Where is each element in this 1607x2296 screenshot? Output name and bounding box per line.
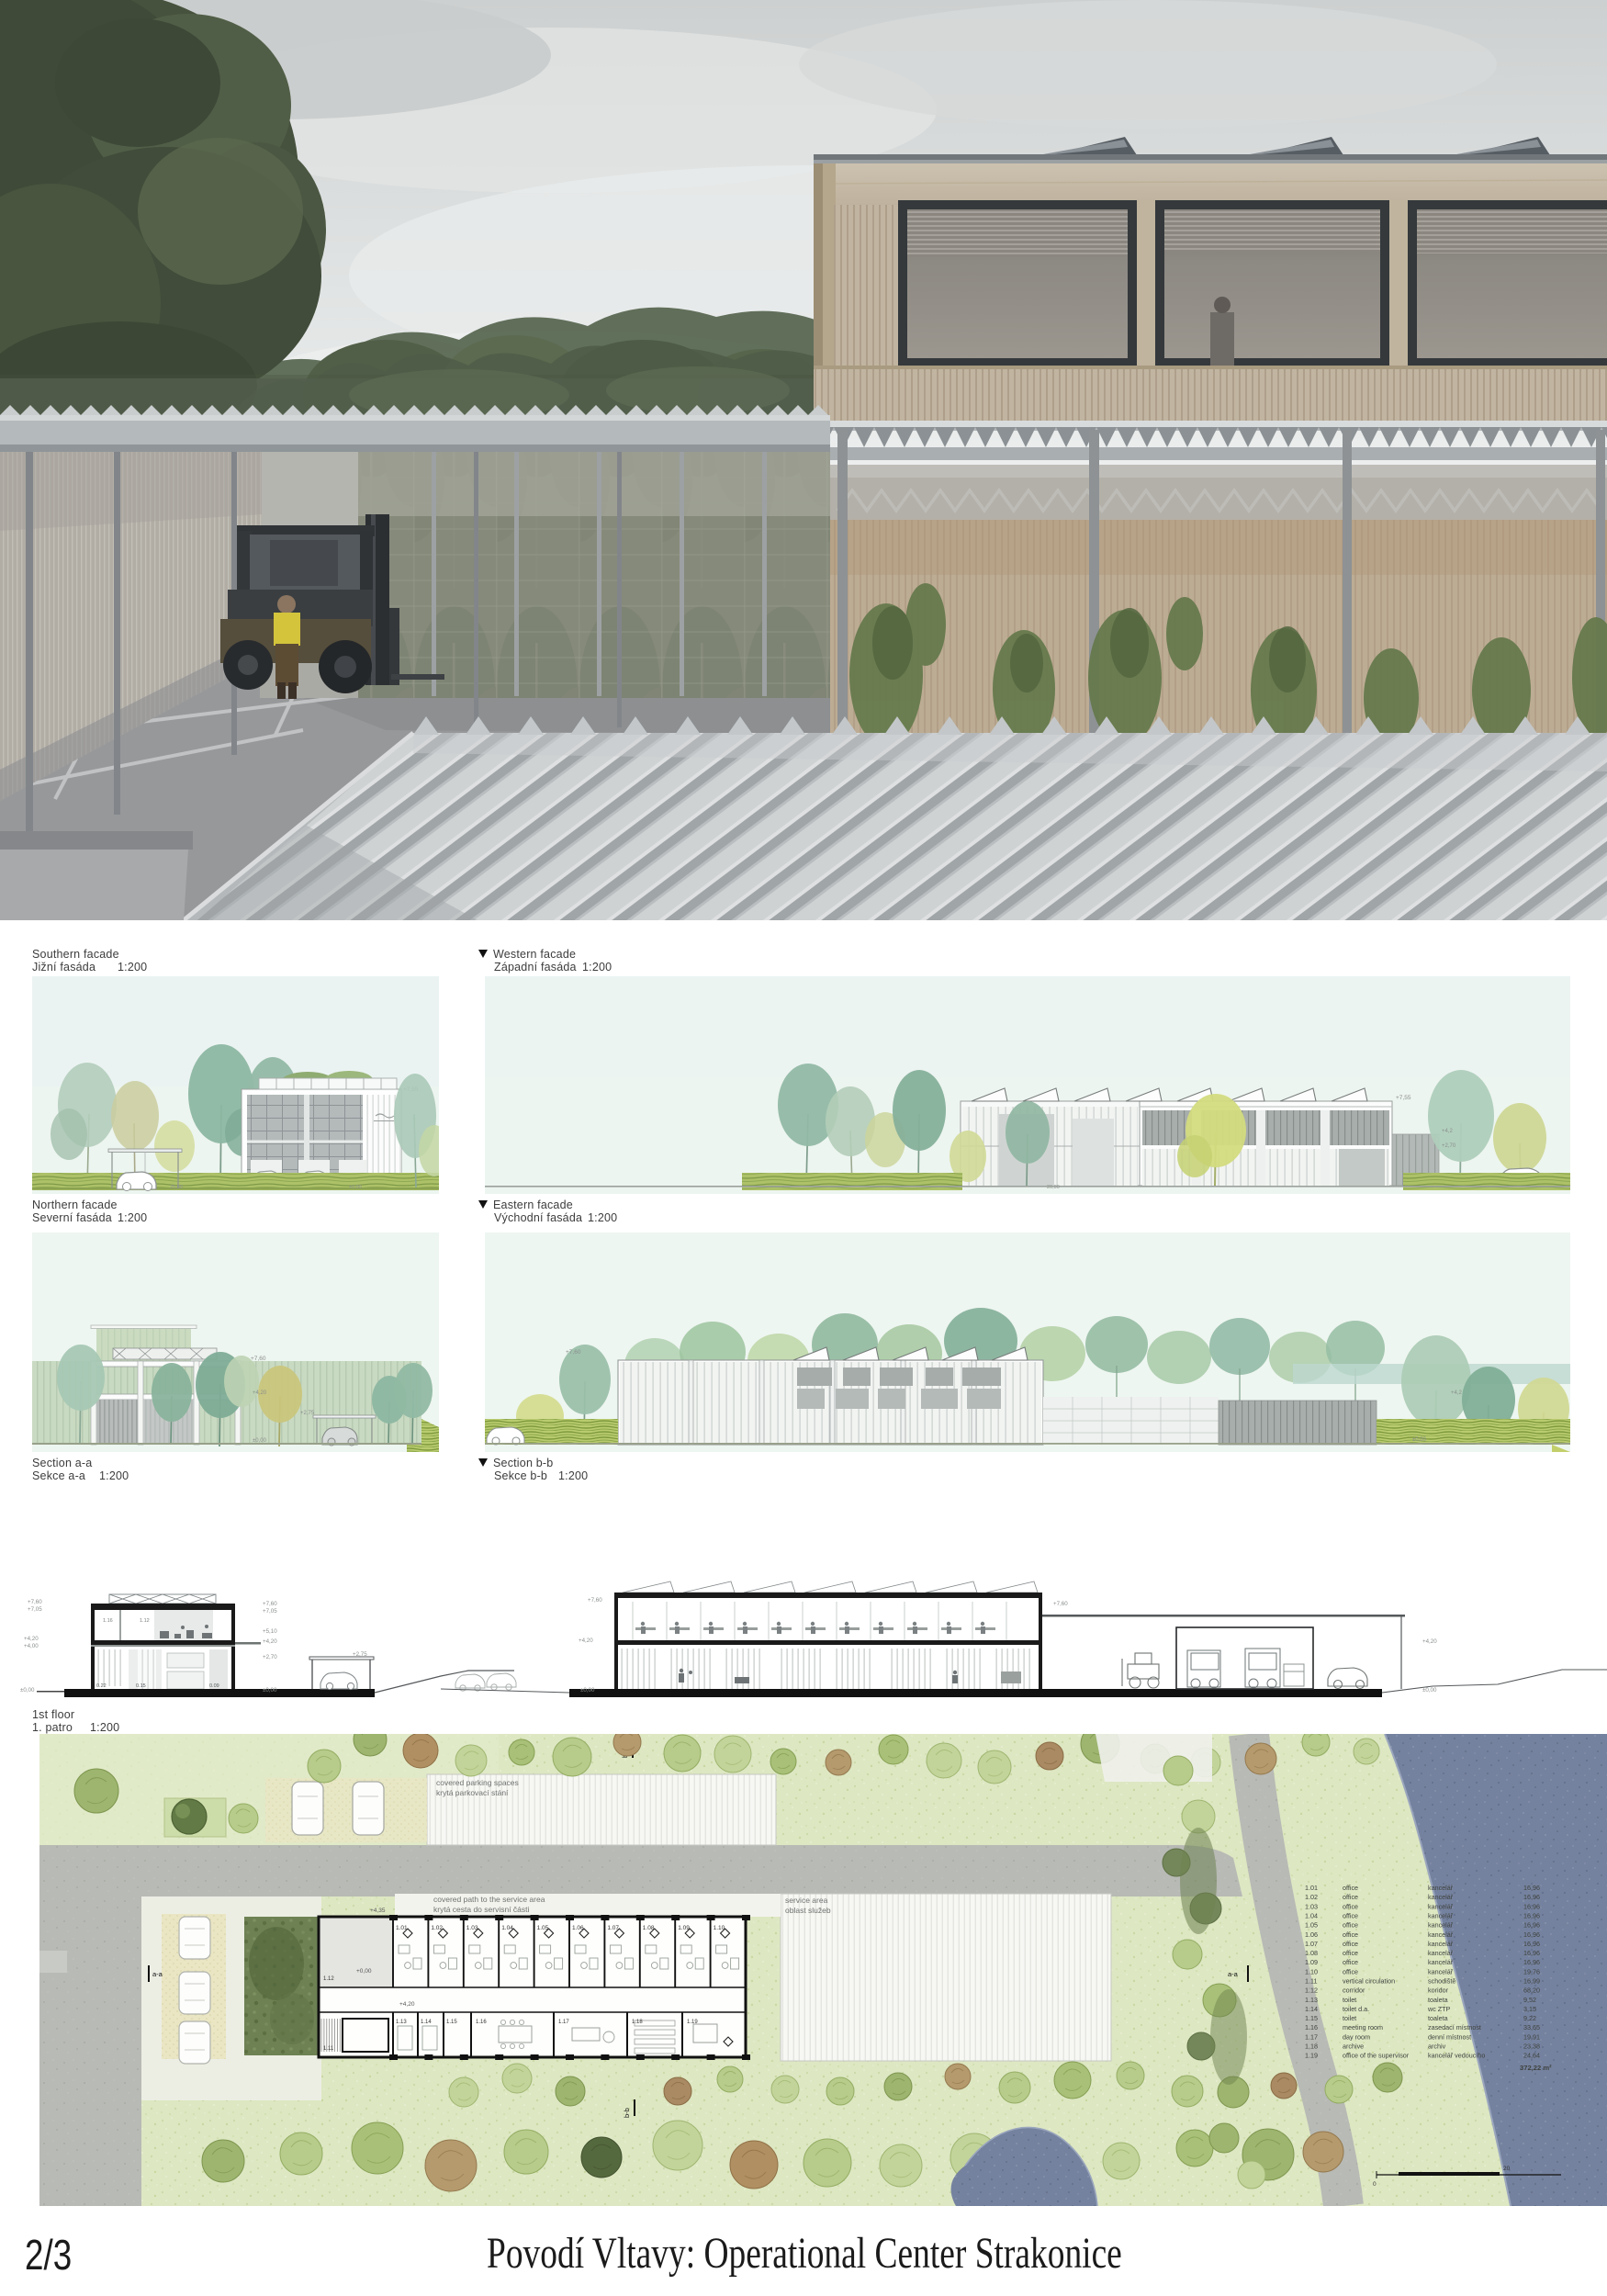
svg-text:16,96: 16,96: [1523, 1902, 1540, 1910]
svg-text:+7,60: +7,60: [588, 1597, 602, 1604]
svg-text:±0,00: ±0,00: [349, 1185, 362, 1190]
svg-text:+4,2: +4,2: [1442, 1129, 1454, 1134]
svg-text:25,00: 25,00: [170, 1185, 183, 1190]
svg-text:16,96: 16,96: [1523, 1911, 1540, 1919]
svg-text:1.09: 1.09: [678, 1925, 690, 1931]
svg-text:+7,05: +7,05: [263, 1608, 277, 1615]
svg-text:kancelář: kancelář: [1428, 1884, 1454, 1892]
svg-text:1.01: 1.01: [1305, 1884, 1318, 1892]
svg-text:office: office: [1343, 1893, 1358, 1901]
svg-text:0.22: 0.22: [96, 1683, 107, 1689]
svg-text:toilet d.a.: toilet d.a.: [1343, 2005, 1369, 2013]
svg-text:1.17: 1.17: [558, 2020, 569, 2025]
svg-text:archiv: archiv: [1428, 2043, 1446, 2051]
svg-text:16,96: 16,96: [1523, 1921, 1540, 1930]
svg-text:1.07: 1.07: [607, 1925, 619, 1931]
svg-text:service area: service area: [785, 1896, 828, 1905]
svg-text:office of the supervisor: office of the supervisor: [1343, 2052, 1410, 2060]
svg-text:1.14: 1.14: [1305, 2005, 1318, 2013]
svg-text:19,76: 19,76: [1523, 1967, 1540, 1975]
svg-text:372,22 m²: 372,22 m²: [1520, 2064, 1552, 2072]
svg-text:0: 0: [1373, 2181, 1377, 2188]
svg-text:16,99: 16,99: [1523, 1977, 1540, 1986]
svg-text:1.13: 1.13: [1305, 1996, 1318, 2004]
svg-text:1.16: 1.16: [103, 1618, 113, 1624]
svg-text:office: office: [1343, 1940, 1358, 1948]
svg-text:1.12: 1.12: [1305, 1986, 1318, 1995]
svg-text:+2,75: +2,75: [300, 1411, 315, 1416]
svg-text:16,96: 16,96: [1523, 1884, 1540, 1892]
svg-text:+4,20: +4,20: [399, 2001, 415, 2008]
svg-text:kancelář: kancelář: [1428, 1893, 1454, 1901]
svg-text:denní místnost: denní místnost: [1428, 2032, 1471, 2041]
svg-text:kancelář: kancelář: [1428, 1902, 1454, 1910]
svg-text:kancelář vedoucího: kancelář vedoucího: [1428, 2052, 1485, 2060]
svg-text:office: office: [1343, 1902, 1358, 1910]
svg-text:+7,60: +7,60: [1053, 1601, 1068, 1607]
svg-text:+2,75: +2,75: [353, 1651, 367, 1658]
svg-text:krytá cesta do servisní části: krytá cesta do servisní části: [433, 1905, 530, 1914]
svg-text:kancelář: kancelář: [1428, 1940, 1454, 1948]
svg-text:1.12: 1.12: [140, 1618, 150, 1624]
svg-text:1.16: 1.16: [1305, 2023, 1318, 2032]
svg-text:16,96: 16,96: [1523, 1930, 1540, 1939]
svg-text:1.03: 1.03: [466, 1925, 478, 1931]
svg-text:1.05: 1.05: [1305, 1921, 1318, 1930]
svg-text:0.09: 0.09: [209, 1683, 219, 1689]
svg-text:9,22: 9,22: [1523, 2014, 1536, 2022]
svg-text:+7,60: +7,60: [28, 1599, 42, 1605]
svg-text:1.02: 1.02: [1305, 1893, 1318, 1901]
svg-text:1.19: 1.19: [1305, 2052, 1318, 2060]
svg-text:24,64: 24,64: [1523, 2052, 1540, 2060]
svg-text:20: 20: [1503, 2166, 1511, 2172]
svg-text:toilet: toilet: [1343, 2014, 1356, 2022]
svg-text:schodiště: schodiště: [1428, 1977, 1455, 1986]
svg-text:1.04: 1.04: [501, 1925, 513, 1931]
svg-text:wc ZTP: wc ZTP: [1427, 2005, 1451, 2013]
svg-text:1.11: 1.11: [323, 2046, 334, 2052]
svg-text:1.09: 1.09: [1305, 1958, 1318, 1966]
svg-text:+4,20: +4,20: [253, 1390, 267, 1396]
svg-text:1.11: 1.11: [1305, 1977, 1317, 1986]
svg-text:1.19: 1.19: [687, 2020, 698, 2025]
svg-text:+4,20: +4,20: [263, 1638, 277, 1645]
svg-text:+0,00: +0,00: [356, 1968, 372, 1975]
svg-text:oblast služeb: oblast služeb: [785, 1906, 831, 1915]
svg-text:68,20: 68,20: [1523, 1986, 1540, 1995]
svg-text:1.02: 1.02: [431, 1925, 443, 1931]
svg-text:toaleta: toaleta: [1428, 2014, 1448, 2022]
svg-text:1.18: 1.18: [632, 2020, 643, 2025]
svg-text:1.18: 1.18: [1305, 2043, 1318, 2051]
svg-text:23,38: 23,38: [1523, 2043, 1540, 2051]
svg-text:3,15: 3,15: [1523, 2005, 1536, 2013]
svg-text:1.06: 1.06: [572, 1925, 584, 1931]
svg-text:1.16: 1.16: [476, 2020, 487, 2025]
svg-text:meeting room: meeting room: [1343, 2023, 1383, 2032]
svg-text:corridor: corridor: [1343, 1986, 1365, 1995]
svg-text:vertical circulation: vertical circulation: [1343, 1977, 1395, 1986]
svg-text:archive: archive: [1343, 2043, 1364, 2051]
svg-text:kancelář: kancelář: [1428, 1958, 1454, 1966]
svg-text:1.08: 1.08: [643, 1925, 655, 1931]
svg-text:zasedací místnost: zasedací místnost: [1428, 2023, 1481, 2032]
svg-text:office: office: [1343, 1884, 1358, 1892]
svg-text:1.05: 1.05: [537, 1925, 549, 1931]
svg-text:a-a: a-a: [1228, 1970, 1239, 1978]
svg-text:+4,2: +4,2: [1451, 1390, 1463, 1396]
svg-text:1.14: 1.14: [421, 2020, 432, 2025]
svg-text:+7,60: +7,60: [251, 1356, 266, 1362]
svg-text:+7,60: +7,60: [263, 1601, 277, 1607]
svg-text:+7,60: +7,60: [566, 1349, 581, 1356]
svg-text:±0,00: ±0,00: [1422, 1687, 1437, 1694]
svg-text:+7,55: +7,55: [1396, 1095, 1411, 1101]
svg-text:1.01: 1.01: [396, 1925, 408, 1931]
svg-text:1.10: 1.10: [1305, 1967, 1318, 1975]
svg-text:19,91: 19,91: [1523, 2032, 1540, 2041]
svg-text:kancelář: kancelář: [1428, 1967, 1454, 1975]
svg-text:+4,00: +4,00: [24, 1643, 39, 1649]
svg-text:16,96: 16,96: [1523, 1958, 1540, 1966]
svg-text:±0,00: ±0,00: [263, 1687, 277, 1694]
svg-text:a-a: a-a: [152, 1970, 163, 1978]
svg-text:toilet: toilet: [1343, 1996, 1356, 2004]
svg-text:toaleta: toaleta: [1428, 1996, 1448, 2004]
svg-text:+2,70: +2,70: [263, 1654, 277, 1660]
svg-text:kancelář: kancelář: [1428, 1921, 1454, 1930]
svg-text:1.07: 1.07: [1305, 1940, 1318, 1948]
svg-text:+4,20: +4,20: [579, 1638, 593, 1644]
svg-text:office: office: [1343, 1911, 1358, 1919]
svg-text:covered path to the service ar: covered path to the service area: [433, 1895, 545, 1904]
svg-text:0.15: 0.15: [136, 1683, 146, 1689]
svg-text:1.03: 1.03: [1305, 1902, 1318, 1910]
svg-text:day room: day room: [1343, 2032, 1370, 2041]
svg-text:1.15: 1.15: [1305, 2014, 1318, 2022]
svg-text:±0,00: ±0,00: [580, 1687, 595, 1694]
svg-text:office: office: [1343, 1949, 1358, 1957]
svg-text:1.17: 1.17: [1305, 2032, 1318, 2041]
svg-text:office: office: [1343, 1921, 1358, 1930]
svg-text:1.15: 1.15: [446, 2020, 457, 2025]
svg-text:kancelář: kancelář: [1428, 1949, 1454, 1957]
svg-text:b-b: b-b: [623, 2108, 631, 2118]
svg-text:16,96: 16,96: [1523, 1893, 1540, 1901]
svg-text:office: office: [1343, 1930, 1358, 1939]
svg-text:1.08: 1.08: [1305, 1949, 1318, 1957]
svg-text:office: office: [1343, 1958, 1358, 1966]
svg-text:covered parking spaces: covered parking spaces: [436, 1778, 519, 1787]
svg-text:9,52: 9,52: [1523, 1996, 1536, 2004]
svg-text:16,96: 16,96: [1523, 1940, 1540, 1948]
svg-text:+7,05: +7,05: [28, 1606, 42, 1613]
svg-text:kancelář: kancelář: [1428, 1911, 1454, 1919]
svg-text:+4,20: +4,20: [24, 1636, 39, 1642]
svg-text:+4,20: +4,20: [1422, 1638, 1437, 1645]
svg-text:+5,10: +5,10: [263, 1628, 277, 1635]
svg-text:±0,00: ±0,00: [20, 1687, 35, 1694]
svg-text:koridor: koridor: [1428, 1986, 1449, 1995]
svg-text:+4,35: +4,35: [370, 1908, 386, 1914]
svg-text:1.10: 1.10: [714, 1925, 725, 1931]
svg-text:1.13: 1.13: [396, 2020, 407, 2025]
svg-text:20,00: 20,00: [1047, 1185, 1060, 1190]
svg-text:office: office: [1343, 1967, 1358, 1975]
svg-text:kancelář: kancelář: [1428, 1930, 1454, 1939]
svg-text:±0,00: ±0,00: [253, 1438, 267, 1444]
svg-text:1.12: 1.12: [323, 1976, 334, 1982]
svg-text:krytá parkovací stání: krytá parkovací stání: [436, 1788, 509, 1797]
svg-text:33,65: 33,65: [1523, 2023, 1540, 2032]
svg-text:1.06: 1.06: [1305, 1930, 1318, 1939]
svg-text:+2,70: +2,70: [1442, 1143, 1456, 1149]
svg-text:16,96: 16,96: [1523, 1949, 1540, 1957]
svg-text:1.04: 1.04: [1305, 1911, 1318, 1919]
svg-text:±0,00: ±0,00: [1412, 1437, 1427, 1443]
